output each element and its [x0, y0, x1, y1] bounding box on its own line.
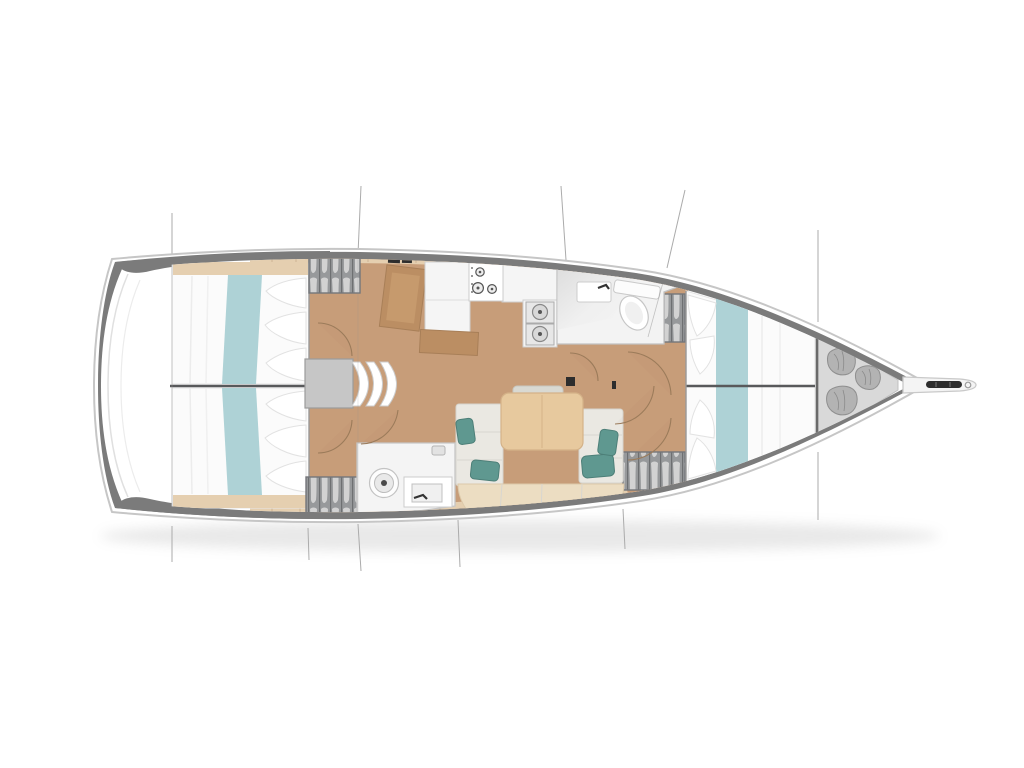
aft-head — [357, 443, 455, 516]
companionway-steps — [305, 359, 397, 408]
berth-headboard — [173, 495, 308, 508]
teal-pillow — [455, 418, 475, 445]
salon-table-group — [501, 386, 583, 450]
aft-cabin-port — [172, 262, 309, 384]
teal-pillow — [470, 460, 500, 482]
stove — [469, 263, 503, 301]
yacht-floor-plan — [0, 0, 1024, 768]
door-stop — [566, 377, 575, 386]
teal-pillow — [597, 429, 618, 456]
bowsprit — [903, 377, 976, 393]
vent — [432, 446, 445, 455]
nav-seat — [425, 262, 470, 336]
yacht-floor-plan-page — [0, 0, 1024, 768]
head-sink — [412, 484, 442, 502]
berth-headboard — [173, 262, 308, 275]
nav-bench — [419, 329, 478, 355]
anchor-roller — [926, 381, 962, 388]
berth-runner — [222, 275, 262, 384]
wardrobe — [664, 294, 685, 342]
berth-runner — [222, 388, 262, 495]
door-hinge — [612, 381, 616, 389]
toilet — [370, 469, 399, 498]
teal-pillow — [581, 454, 615, 479]
hull-shadow — [100, 520, 940, 552]
